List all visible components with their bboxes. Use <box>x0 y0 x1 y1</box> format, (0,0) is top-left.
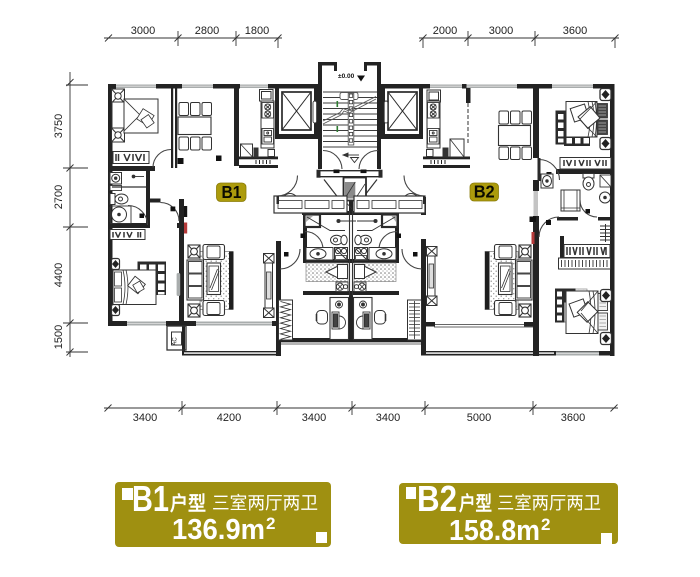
svg-text:B2: B2 <box>474 182 495 202</box>
svg-text:1500: 1500 <box>53 325 65 349</box>
svg-text:2000: 2000 <box>433 25 457 37</box>
svg-text:3400: 3400 <box>133 412 157 424</box>
svg-text:3400: 3400 <box>302 412 326 424</box>
svg-text:3400: 3400 <box>376 412 400 424</box>
svg-text:158.8m: 158.8m <box>449 515 540 547</box>
svg-text:户型: 户型 <box>459 492 492 515</box>
svg-text:±0.00: ±0.00 <box>338 73 355 80</box>
svg-text:3600: 3600 <box>563 25 587 37</box>
svg-text:户型: 户型 <box>170 492 206 515</box>
svg-text:5000: 5000 <box>467 412 491 424</box>
svg-text:B2: B2 <box>417 478 457 519</box>
svg-text:3000: 3000 <box>489 25 513 37</box>
svg-text:B1: B1 <box>222 182 242 202</box>
svg-text:3750: 3750 <box>53 114 65 138</box>
svg-text:2800: 2800 <box>195 25 219 37</box>
svg-text:AC: AC <box>173 337 179 346</box>
svg-text:2: 2 <box>266 514 275 533</box>
svg-text:2700: 2700 <box>53 185 65 209</box>
svg-text:4200: 4200 <box>217 412 241 424</box>
svg-text:3000: 3000 <box>131 25 155 37</box>
svg-text:3600: 3600 <box>561 412 585 424</box>
svg-text:136.9m: 136.9m <box>172 514 265 546</box>
svg-text:三室两厅两卫: 三室两厅两卫 <box>497 493 601 513</box>
svg-text:1800: 1800 <box>245 25 269 37</box>
svg-text:三室两厅两卫: 三室两厅两卫 <box>212 493 318 513</box>
svg-text:B1: B1 <box>132 478 169 519</box>
svg-text:2: 2 <box>541 515 550 534</box>
svg-text:4400: 4400 <box>53 263 65 287</box>
